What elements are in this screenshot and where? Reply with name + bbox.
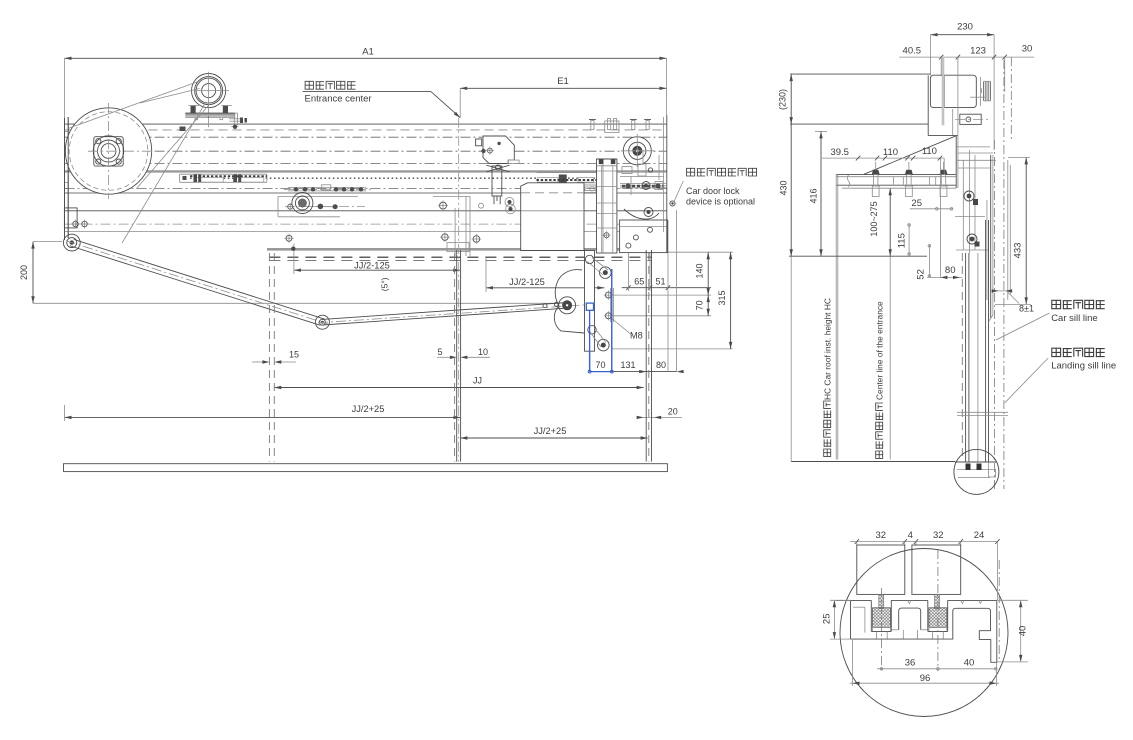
svg-text:70: 70	[595, 360, 605, 370]
svg-text:140: 140	[694, 263, 704, 278]
svg-text:(5°): (5°)	[379, 277, 389, 291]
svg-text:40: 40	[964, 658, 975, 669]
svg-text:433: 433	[1013, 243, 1024, 259]
svg-text:230: 230	[957, 22, 973, 33]
svg-text:device is optional: device is optional	[686, 196, 755, 206]
svg-text:JJ/2+25: JJ/2+25	[352, 404, 385, 414]
svg-text:JJ/2-125: JJ/2-125	[509, 277, 545, 287]
svg-text:JJ/2-125: JJ/2-125	[354, 260, 390, 270]
svg-text:115: 115	[897, 233, 908, 248]
svg-text:40.5: 40.5	[903, 46, 922, 57]
svg-text:100~275: 100~275	[869, 201, 879, 236]
svg-text:Car door lock: Car door lock	[686, 186, 740, 196]
svg-text:25: 25	[821, 614, 832, 625]
svg-text:430: 430	[779, 180, 789, 195]
svg-text:80: 80	[656, 360, 666, 370]
svg-text:51: 51	[655, 277, 665, 287]
svg-text:52: 52	[916, 269, 927, 280]
svg-text:80: 80	[945, 265, 956, 276]
svg-text:8±1: 8±1	[1019, 304, 1034, 314]
svg-text:65: 65	[634, 277, 644, 287]
svg-text:Landing sill line: Landing sill line	[1051, 361, 1116, 372]
svg-text:40: 40	[1018, 626, 1029, 637]
svg-text:(230): (230)	[778, 89, 788, 110]
svg-text:32: 32	[933, 530, 944, 541]
svg-text:Entrance center: Entrance center	[305, 93, 372, 104]
svg-text:Center line of the entrance: Center line of the entrance	[875, 301, 885, 400]
svg-text:5: 5	[437, 347, 442, 357]
svg-text:24: 24	[974, 530, 985, 541]
svg-text:A1: A1	[362, 47, 374, 58]
svg-text:30: 30	[1022, 44, 1033, 55]
svg-text:110: 110	[922, 146, 937, 157]
svg-text:10: 10	[478, 347, 488, 357]
svg-text:4: 4	[908, 530, 913, 541]
svg-text:JJ/2+25: JJ/2+25	[534, 426, 567, 436]
svg-text:36: 36	[905, 658, 916, 669]
svg-text:JJ: JJ	[473, 375, 482, 385]
svg-text:123: 123	[970, 46, 986, 57]
svg-text:96: 96	[920, 673, 931, 684]
svg-text:32: 32	[876, 530, 887, 541]
svg-text:Car sill line: Car sill line	[1051, 313, 1097, 324]
svg-text:70: 70	[694, 300, 704, 310]
svg-text:E1: E1	[557, 76, 569, 87]
svg-text:25: 25	[911, 198, 922, 209]
svg-text:HC Car roof inst. height HC: HC Car roof inst. height HC	[823, 298, 833, 400]
svg-text:20: 20	[668, 406, 678, 416]
svg-text:315: 315	[717, 290, 727, 305]
svg-text:416: 416	[809, 188, 819, 203]
svg-text:15: 15	[289, 350, 299, 360]
svg-text:131: 131	[620, 360, 635, 370]
svg-text:110: 110	[883, 147, 898, 158]
svg-text:200: 200	[19, 265, 29, 280]
svg-text:39.5: 39.5	[830, 147, 849, 158]
